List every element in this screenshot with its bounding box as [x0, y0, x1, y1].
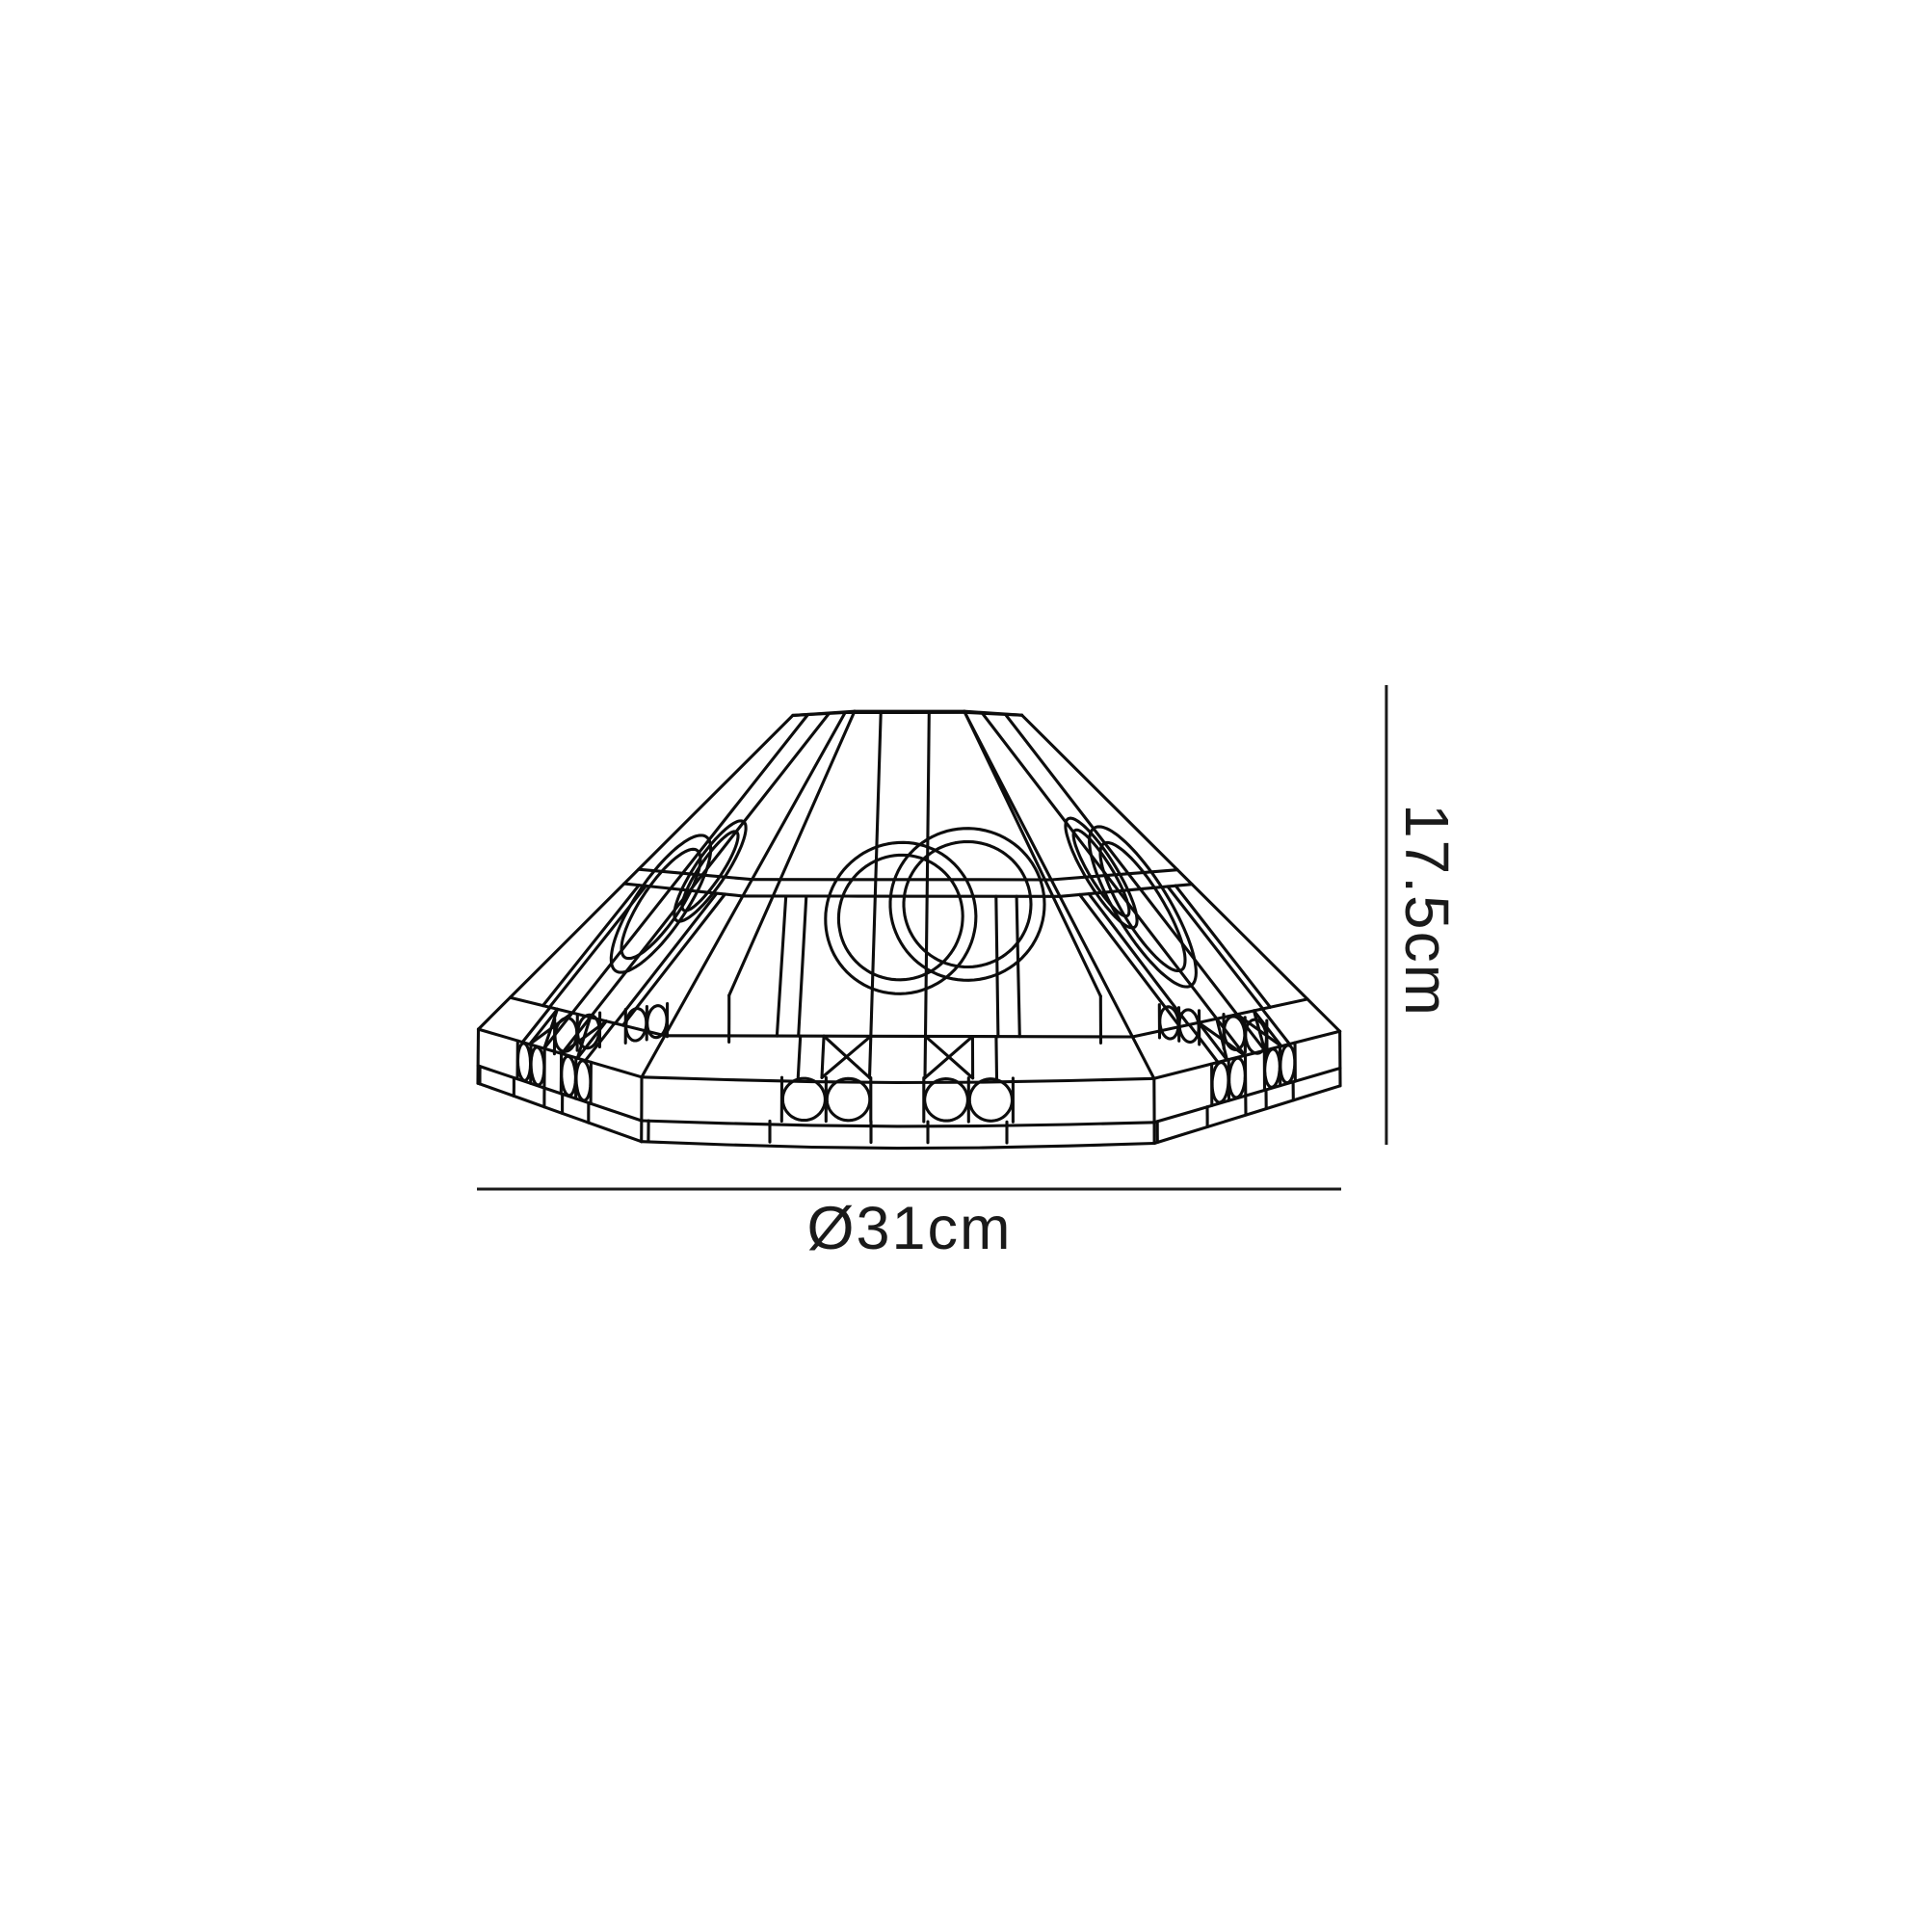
svg-text:Ø31cm: Ø31cm [806, 1195, 1012, 1262]
svg-text:17.5cm: 17.5cm [1392, 804, 1462, 1018]
